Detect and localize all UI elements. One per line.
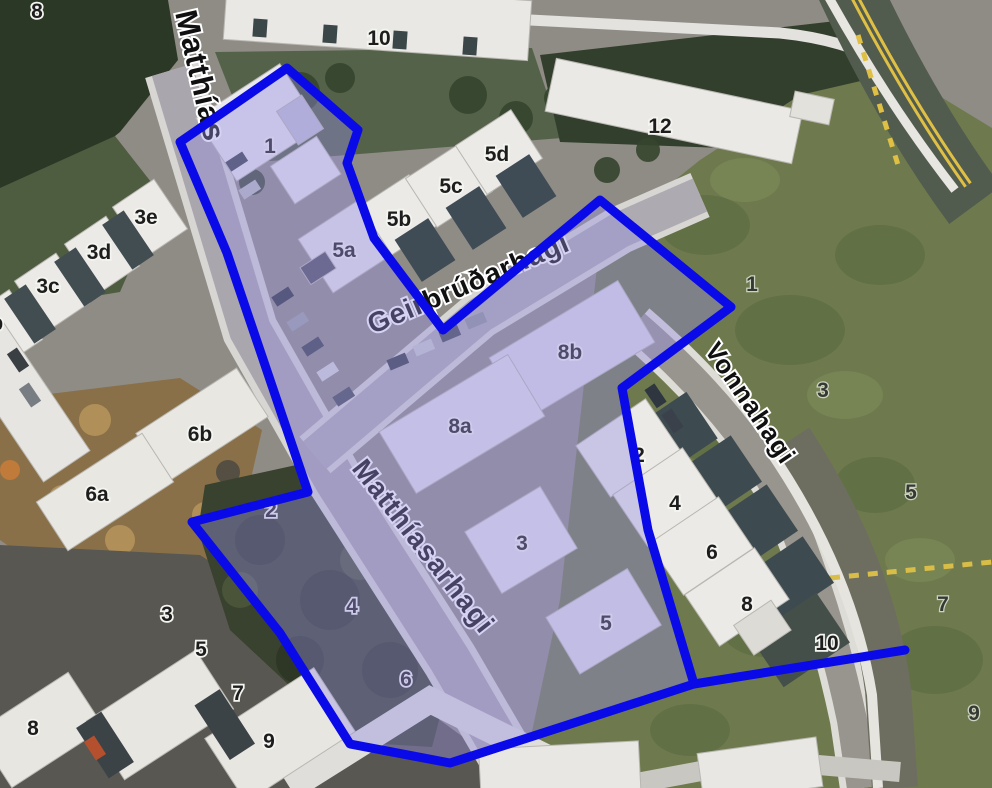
num-9-grass: 9 bbox=[968, 702, 980, 725]
num-3d: 3d bbox=[87, 241, 112, 264]
num-5-grass: 5 bbox=[905, 481, 917, 504]
num-5-sw: 5 bbox=[195, 638, 207, 661]
num-3e: 3e bbox=[134, 206, 157, 229]
num-4-east: 4 bbox=[669, 492, 681, 515]
map-viewport[interactable]: 8 10 12 1 5a 5b 5c 5d 3e 3d 3c 3b 6b 6a … bbox=[0, 0, 992, 788]
num-5b: 5b bbox=[387, 208, 412, 231]
num-6-east: 6 bbox=[706, 541, 718, 564]
num-5c: 5c bbox=[439, 175, 463, 198]
num-1-grass: 1 bbox=[746, 273, 758, 296]
num-12: 12 bbox=[648, 115, 671, 138]
num-3-sw: 3 bbox=[161, 603, 173, 626]
num-3-grass: 3 bbox=[817, 379, 829, 402]
num-7-grass: 7 bbox=[937, 593, 949, 616]
num-8-top: 8 bbox=[31, 0, 43, 23]
num-10-east: 10 bbox=[815, 632, 838, 655]
aerial-map: 8 10 12 1 5a 5b 5c 5d 3e 3d 3c 3b 6b 6a … bbox=[0, 0, 992, 788]
num-5d: 5d bbox=[485, 143, 510, 166]
num-3b-partial: 3b bbox=[0, 312, 3, 335]
num-6a: 6a bbox=[85, 483, 109, 506]
num-8-east: 8 bbox=[741, 593, 753, 616]
num-7-sw: 7 bbox=[232, 682, 244, 705]
num-10-row: 10 bbox=[367, 27, 390, 50]
num-9-sw: 9 bbox=[263, 730, 275, 753]
num-8-sw: 8 bbox=[27, 717, 39, 740]
num-6b: 6b bbox=[188, 423, 213, 446]
num-3c: 3c bbox=[36, 275, 60, 298]
